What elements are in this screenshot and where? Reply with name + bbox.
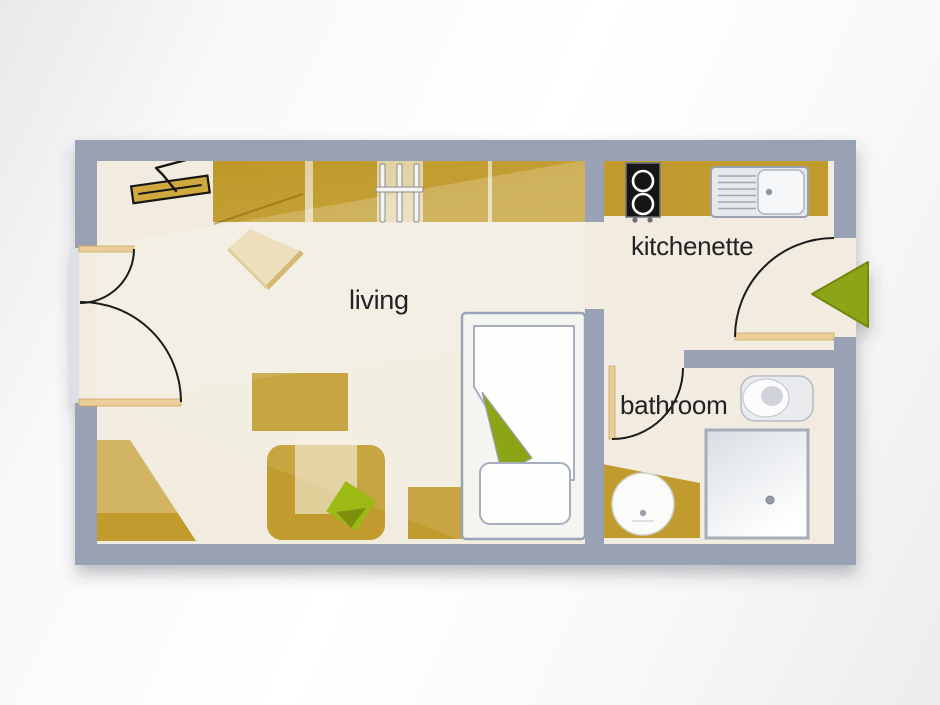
pillow	[480, 463, 570, 524]
sink-drain	[766, 189, 772, 195]
radiator	[376, 164, 423, 222]
room-label-kitchenette: kitchenette	[631, 231, 753, 261]
entrance-door-leaf	[735, 333, 834, 340]
wall-bathroom-top	[684, 350, 856, 368]
toilet	[741, 376, 813, 421]
room-label-living: living	[349, 285, 409, 315]
balcony-sill	[71, 247, 79, 404]
washbasin-drain	[640, 510, 646, 516]
wall-segment-left-lower	[75, 403, 97, 565]
room-label-bathroom: bathroom	[620, 390, 727, 420]
bathroom-door-leaf	[609, 366, 615, 439]
floorplan: living kitchenette bathroom	[71, 140, 868, 565]
shower	[706, 430, 808, 538]
wall-bathroom-left	[585, 309, 604, 544]
floorplan-canvas: living kitchenette bathroom	[0, 0, 940, 705]
sink-basin	[758, 170, 804, 214]
stove-knob	[632, 217, 637, 222]
bed	[462, 313, 585, 539]
bathroom-sink	[612, 473, 674, 535]
washbasin	[612, 473, 674, 535]
stove	[626, 163, 660, 223]
wall-segment-right-lower	[834, 337, 856, 565]
wall-segment-bottom	[75, 544, 856, 565]
kitchen-sink	[711, 167, 808, 217]
wall-segment-top	[75, 140, 856, 161]
toilet-bowl-inner	[761, 386, 783, 406]
wall-segment-left-upper	[75, 140, 97, 248]
balcony-door-leaf-large	[79, 399, 181, 406]
shower-drain	[766, 496, 774, 504]
wall-kitchenette-stub	[585, 140, 604, 222]
wall-segment-right-upper	[834, 140, 856, 238]
balcony-door-leaf-small	[79, 246, 134, 252]
stove-knob	[647, 217, 652, 222]
